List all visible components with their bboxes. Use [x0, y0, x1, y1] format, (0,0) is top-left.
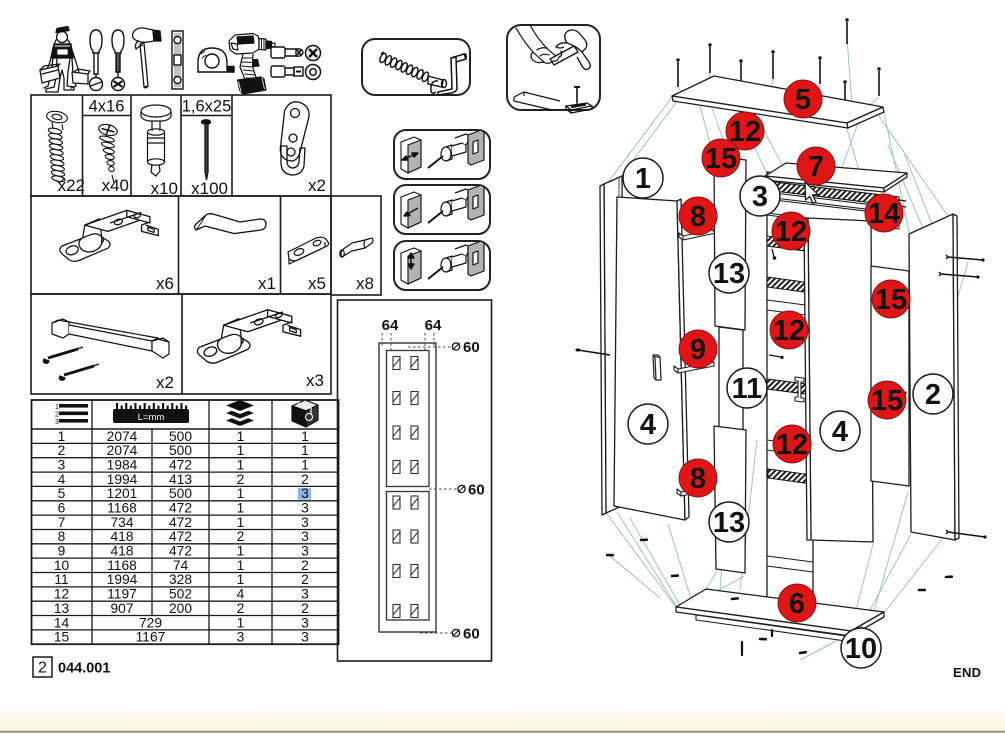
svg-text:9: 9 [58, 544, 66, 559]
svg-text:2074: 2074 [107, 443, 138, 458]
svg-text:13: 13 [713, 507, 745, 539]
svg-text:END: END [953, 665, 981, 680]
svg-text:14: 14 [868, 198, 900, 230]
svg-text:734: 734 [110, 515, 133, 530]
svg-text:4: 4 [237, 587, 245, 602]
svg-text:10: 10 [54, 558, 70, 573]
svg-text:3: 3 [58, 457, 66, 472]
svg-text:15: 15 [705, 143, 737, 175]
svg-text:1: 1 [237, 572, 245, 587]
svg-text:5: 5 [58, 486, 66, 501]
svg-text:2: 2 [237, 601, 245, 616]
svg-text:1: 1 [237, 544, 245, 559]
svg-text:500: 500 [169, 486, 192, 501]
svg-text:472: 472 [169, 544, 192, 559]
svg-text:472: 472 [169, 529, 192, 544]
svg-text:x5: x5 [308, 274, 326, 293]
svg-text:2: 2 [237, 529, 245, 544]
svg-text:9: 9 [690, 334, 706, 366]
svg-text:14: 14 [54, 615, 70, 630]
svg-text:3: 3 [55, 419, 59, 426]
svg-text:x2: x2 [156, 373, 174, 392]
svg-text:7: 7 [58, 515, 66, 530]
svg-text:2: 2 [301, 572, 309, 587]
svg-text:4: 4 [640, 409, 656, 441]
svg-text:12: 12 [773, 315, 805, 347]
svg-text:2: 2 [55, 412, 59, 419]
svg-text:729: 729 [139, 615, 162, 630]
svg-text:1: 1 [301, 443, 309, 458]
svg-text:60: 60 [468, 482, 485, 499]
svg-text:3: 3 [301, 630, 309, 645]
svg-text:3: 3 [237, 630, 245, 645]
svg-text:3: 3 [752, 181, 768, 213]
svg-text:x1: x1 [258, 274, 276, 293]
svg-text:3: 3 [301, 615, 309, 630]
svg-text:3: 3 [301, 529, 309, 544]
svg-text:200: 200 [169, 601, 192, 616]
svg-text:2: 2 [301, 472, 309, 487]
svg-text:11: 11 [732, 373, 763, 405]
svg-text:4: 4 [58, 472, 66, 487]
svg-text:2: 2 [38, 660, 47, 677]
svg-text:64: 64 [382, 317, 399, 334]
svg-text:12: 12 [775, 216, 807, 248]
svg-text:2: 2 [925, 379, 941, 411]
svg-text:x6: x6 [156, 274, 174, 293]
svg-text:8: 8 [690, 201, 706, 233]
svg-text:2: 2 [301, 601, 309, 616]
svg-text:74: 74 [173, 558, 189, 573]
svg-text:1168: 1168 [107, 501, 137, 516]
svg-text:5: 5 [795, 84, 811, 116]
svg-text:1201: 1201 [107, 486, 138, 501]
svg-text:1,6x25: 1,6x25 [182, 98, 232, 116]
svg-text:x40: x40 [102, 176, 129, 195]
svg-text:1: 1 [237, 515, 245, 530]
svg-text:413: 413 [169, 472, 192, 487]
svg-text:2: 2 [237, 472, 245, 487]
svg-text:472: 472 [169, 515, 192, 530]
svg-text:6: 6 [789, 588, 805, 620]
svg-text:1: 1 [237, 558, 245, 573]
svg-text:502: 502 [169, 587, 192, 602]
svg-text:60: 60 [463, 626, 480, 643]
svg-text:1: 1 [301, 429, 309, 444]
svg-text:4: 4 [832, 416, 848, 448]
svg-text:1984: 1984 [107, 457, 138, 472]
svg-text:12: 12 [776, 429, 808, 461]
svg-text:2074: 2074 [107, 429, 138, 444]
svg-text:7: 7 [808, 151, 824, 183]
svg-text:1197: 1197 [107, 587, 137, 602]
svg-text:2: 2 [301, 558, 309, 573]
svg-text:64: 64 [425, 317, 442, 334]
svg-text:418: 418 [110, 544, 133, 559]
svg-text:4x16: 4x16 [89, 98, 125, 116]
svg-text:328: 328 [169, 572, 192, 587]
svg-text:1: 1 [301, 457, 309, 472]
svg-text:10: 10 [845, 633, 877, 665]
svg-text:3: 3 [301, 587, 309, 602]
svg-text:418: 418 [110, 529, 133, 544]
svg-text:2: 2 [58, 443, 66, 458]
svg-text:x2: x2 [308, 176, 326, 195]
svg-text:1168: 1168 [107, 558, 137, 573]
svg-text:1: 1 [237, 501, 245, 516]
svg-text:13: 13 [713, 258, 745, 290]
svg-text:13: 13 [54, 601, 70, 616]
svg-text:8: 8 [690, 463, 706, 495]
svg-text:x3: x3 [306, 371, 324, 390]
svg-text:1: 1 [55, 404, 59, 411]
svg-text:x8: x8 [356, 274, 374, 293]
svg-text:8: 8 [58, 529, 66, 544]
svg-text:472: 472 [169, 501, 192, 516]
svg-text:x22: x22 [58, 176, 85, 195]
svg-text:15: 15 [875, 284, 907, 316]
svg-text:1: 1 [635, 163, 651, 195]
svg-text:500: 500 [169, 443, 192, 458]
svg-text:1: 1 [237, 457, 245, 472]
svg-text:1: 1 [237, 429, 245, 444]
svg-text:500: 500 [169, 429, 192, 444]
svg-text:11: 11 [54, 572, 68, 587]
svg-text:L=mm: L=mm [138, 412, 165, 423]
svg-text:1: 1 [237, 486, 245, 501]
svg-text:1: 1 [58, 429, 66, 444]
svg-text:3: 3 [301, 501, 309, 516]
svg-text:1: 1 [237, 615, 245, 630]
svg-text:472: 472 [169, 457, 192, 472]
svg-text:60: 60 [463, 339, 480, 356]
svg-text:1: 1 [237, 443, 245, 458]
svg-text:1167: 1167 [136, 630, 166, 645]
svg-text:15: 15 [54, 630, 70, 645]
svg-text:044.001: 044.001 [58, 661, 110, 677]
svg-text:6: 6 [58, 501, 66, 516]
svg-text:15: 15 [871, 385, 903, 417]
svg-text:3: 3 [301, 544, 309, 559]
svg-text:907: 907 [110, 601, 133, 616]
svg-text:1994: 1994 [107, 572, 138, 587]
svg-text:3: 3 [301, 486, 309, 501]
svg-text:1994: 1994 [107, 472, 138, 487]
svg-text:12: 12 [54, 587, 69, 602]
svg-text:3: 3 [301, 515, 309, 530]
svg-text:x100: x100 [191, 179, 228, 198]
svg-text:x10: x10 [151, 179, 178, 198]
